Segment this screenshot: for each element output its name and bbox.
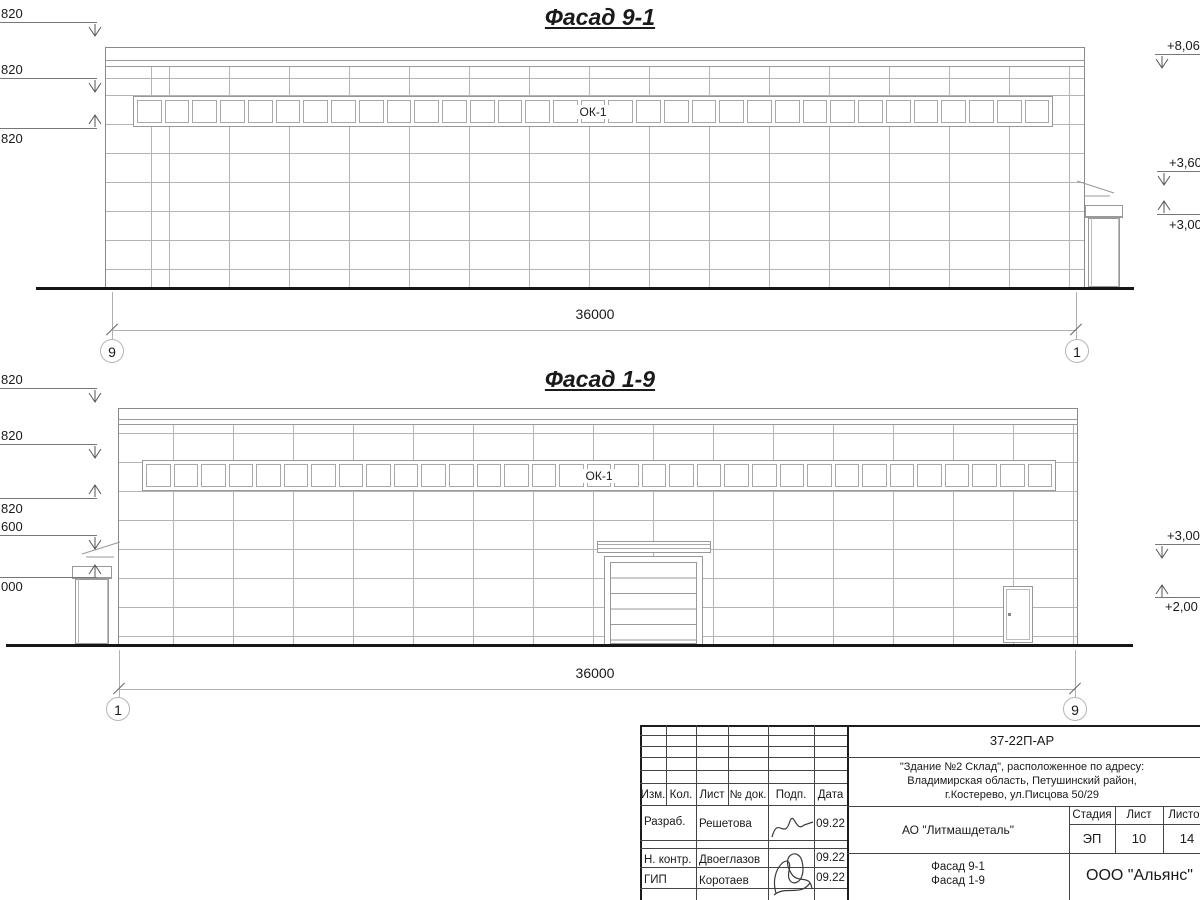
sheet-label: Лист [1115,809,1163,821]
object-line: г.Костерево, ул.Писцова 50/29 [847,789,1197,801]
elevation-arrow-down-icon [88,389,102,409]
elevation-arrow-down-icon [1155,545,1169,565]
col-list: Лист [696,789,728,801]
gate-canopy-line [598,544,710,545]
line [640,770,847,771]
line [847,725,849,900]
person-name: Решетова [699,818,752,830]
parapet-line [105,60,1085,61]
elevation-arrow-down-icon [1157,172,1171,192]
elevation-shelf [0,577,97,578]
porch-wall-lines [1091,218,1119,287]
porch-wall-lines [78,579,108,644]
doc-number: 37-22П-АР [847,733,1197,748]
ground-line [6,644,1133,647]
panel-grid [119,425,1077,644]
elevation-value: +2,00 [1165,599,1198,614]
line [696,725,697,900]
line [847,757,1200,758]
elevation-shelf [0,22,97,23]
line [640,805,847,806]
elevation-shelf [0,444,97,445]
organization-name: ООО "Альянс" [1069,867,1200,885]
line [640,757,847,758]
facade-9-1-title: Фасад 9-1 [0,4,1200,31]
elevation-value: 820 [1,6,23,21]
ground-line [36,287,1134,290]
elevation-shelf [0,388,97,389]
window-mark-label: ОК-1 [568,105,619,119]
signature [766,845,816,899]
col-izm: Изм. [640,789,666,801]
elevation-arrow-up-icon [1157,194,1171,214]
elevation-arrow-up-icon [88,558,102,578]
elevation-value: 820 [1,501,23,516]
stage-value: ЭП [1069,831,1115,846]
door-handle [1008,613,1011,616]
line [640,735,847,736]
elevation-shelf [1157,214,1200,215]
elevation-arrow-up-icon [1155,578,1169,598]
dimension-text: 36000 [0,306,1190,322]
line [1069,824,1200,825]
object-line: "Здание №2 Склад", расположенное по адре… [847,761,1197,773]
elevation-shelf [1155,597,1200,598]
col-kol: Кол. [666,789,696,801]
stage-label: Стадия [1069,809,1115,821]
parapet-line [118,419,1078,420]
axis-bubble: 9 [1063,697,1087,721]
elevation-value: 000 [1,579,23,594]
canopy [1076,176,1122,200]
elevation-value: 600 [1,519,23,534]
col-dok: № док. [728,789,768,801]
facade-1-9-title: Фасад 1-9 [0,366,1200,393]
elevation-value: 820 [1,62,23,77]
elevation-shelf [0,128,97,129]
window-band-label: ОК-1 [142,460,1056,491]
sheets-value: 14 [1163,831,1200,846]
object-line: Владимирская область, Петушинский район, [847,775,1197,787]
elevation-shelf [0,535,97,536]
elevation-arrow-down-icon [88,445,102,465]
gate-canopy-line [598,548,710,549]
title-block: Изм. Кол. Лист № док. Подп. Дата Разраб.… [640,725,1200,900]
signature [766,809,816,845]
elevation-shelf [0,78,97,79]
elevation-value: +3,00 [1169,217,1200,232]
gate-canopy [597,541,711,553]
line [847,806,1200,807]
line [640,783,847,784]
elevation-shelf [0,498,97,499]
line [847,853,1200,854]
role-label: ГИП [644,874,667,886]
date-value: 09.22 [814,818,847,830]
role-label: Разраб. [644,816,685,828]
dimension-line [112,330,1077,331]
elevation-arrow-down-icon [88,23,102,43]
elevation-arrow-up-icon [88,478,102,498]
date-value: 09.22 [814,872,847,884]
elevation-value: 820 [1,372,23,387]
dimension-line [119,689,1076,690]
elevation-arrow-up-icon [88,108,102,128]
window-band-label: ОК-1 [133,96,1053,127]
porch-roof [1085,205,1123,218]
axis-bubble: 1 [106,697,130,721]
person-name: Коротаев [699,875,749,887]
drawing-sheet: Фасад 9-1 ОК-1 36000 9 1 820 820 820 +8,… [0,0,1200,900]
role-label: Н. контр. [644,854,691,866]
sheet-value: 10 [1115,831,1163,846]
col-data: Дата [814,789,847,801]
elevation-value: +8,06 [1167,38,1200,53]
elevation-value: +3,60 [1169,155,1200,170]
elevation-arrow-down-icon [88,79,102,99]
dimension-text: 36000 [0,665,1190,681]
axis-bubble: 9 [100,339,124,363]
elevation-value: +3,00 [1167,528,1200,543]
elevation-value: 820 [1,131,23,146]
axis-bubble: 1 [1065,339,1089,363]
sheets-label: Листов [1163,809,1200,821]
window-mark-label: ОК-1 [574,469,625,483]
elevation-arrow-down-icon [88,536,102,556]
person-name: Двоеглазов [699,854,760,866]
col-podp: Подп. [768,789,814,801]
elevation-value: 820 [1,428,23,443]
elevation-arrow-down-icon [1155,55,1169,75]
date-value: 09.22 [814,852,847,864]
line [640,746,847,747]
sheet-name-line: Фасад 9-1 [847,861,1069,873]
sectional-gate [610,562,697,644]
sheet-name-line: Фасад 1-9 [847,875,1069,887]
client-name: АО "Литмашдеталь" [847,823,1069,837]
